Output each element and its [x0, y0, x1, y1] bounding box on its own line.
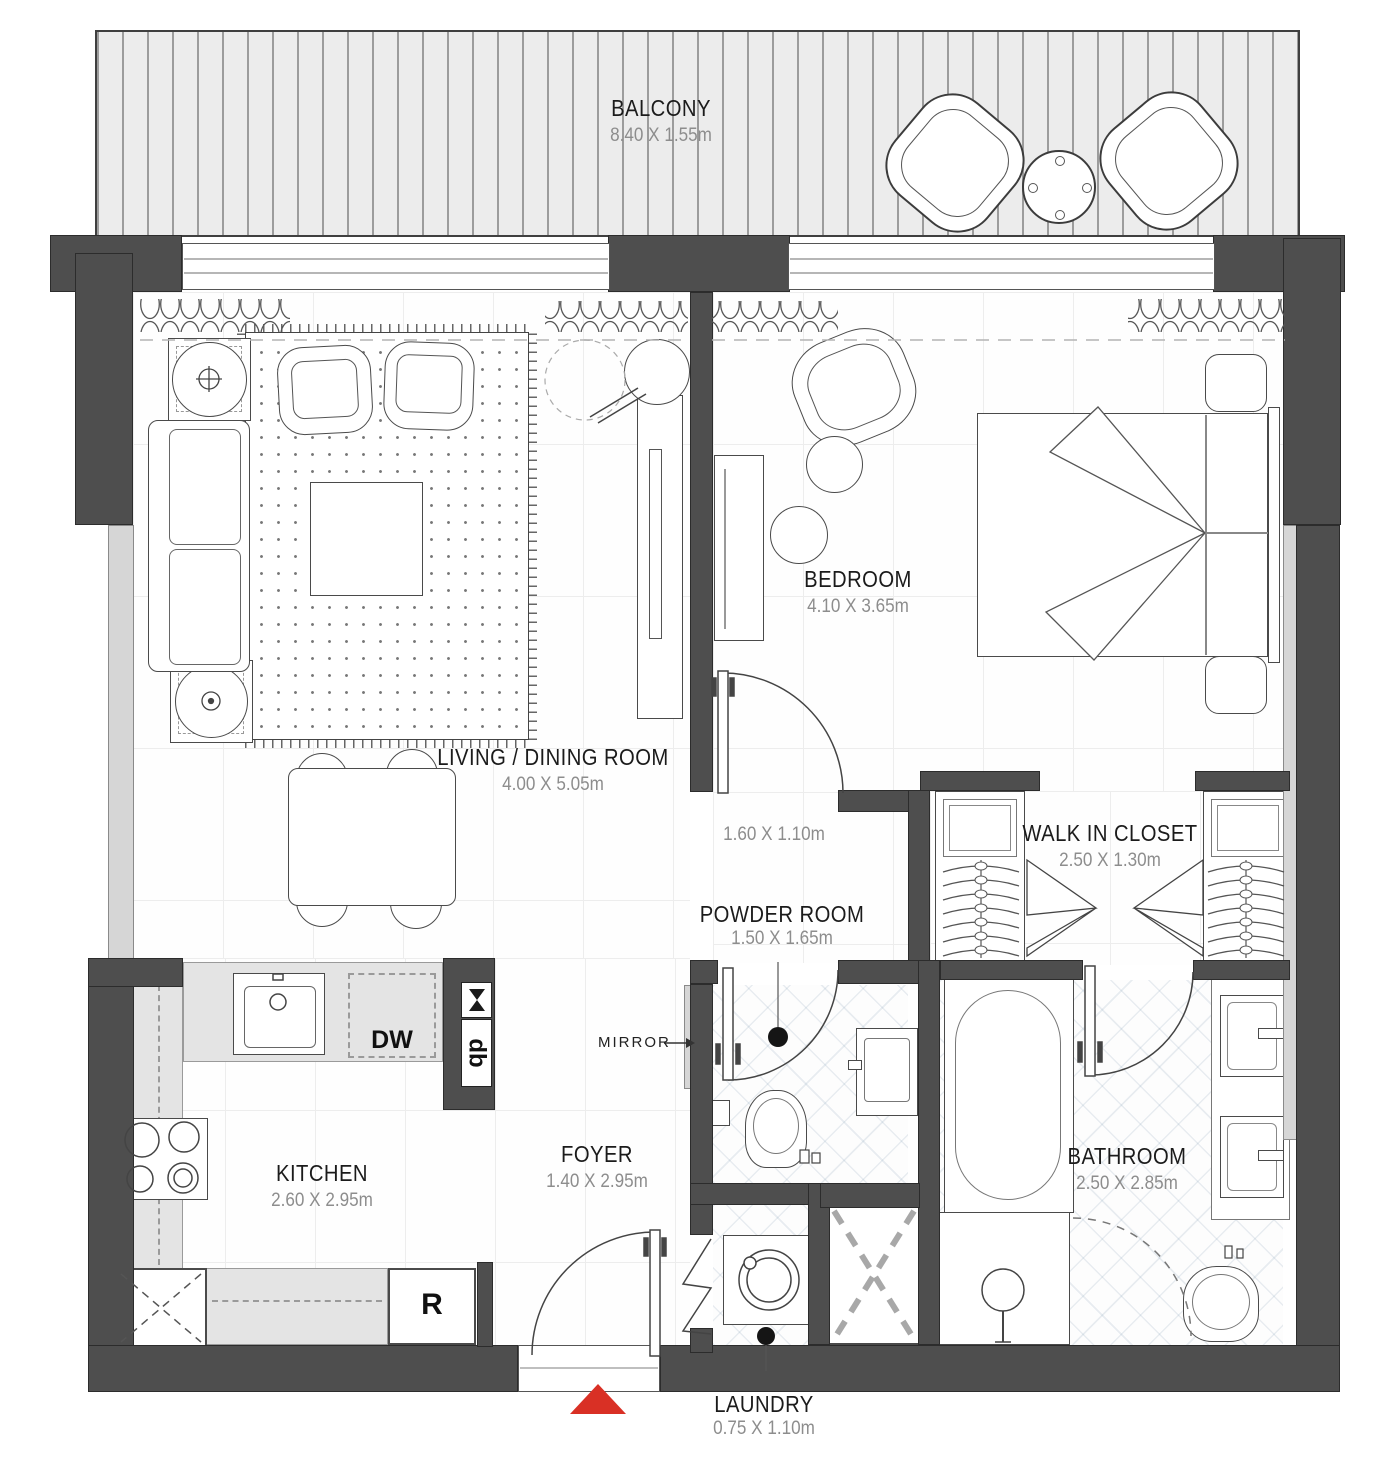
wall-segment	[608, 235, 790, 292]
bedroom-label: BEDROOM 4.10 X 3.65m	[738, 566, 978, 618]
faucet	[848, 1060, 862, 1070]
wall-segment	[1193, 960, 1290, 980]
seat	[799, 334, 910, 439]
seat	[395, 354, 463, 414]
rug-fringe	[245, 324, 529, 332]
balcony-name: BALCONY	[555, 95, 766, 122]
kitchen-sink	[233, 973, 325, 1055]
wall-segment	[108, 525, 134, 962]
toilet-seat	[753, 1098, 799, 1154]
bowtie-panel	[461, 982, 492, 1018]
bathroom-name: BATHROOM	[1021, 1143, 1232, 1170]
balcony-round-table	[1022, 150, 1096, 224]
shower	[938, 1212, 1070, 1345]
toilet-seat	[1192, 1274, 1250, 1330]
walk-in-closet-label: WALK IN CLOSET 2.50 X 1.30m	[990, 820, 1230, 872]
walk-in-closet-dims: 2.50 X 1.30m	[1002, 850, 1218, 872]
sofa-cushion	[169, 549, 241, 665]
foyer-name: FOYER	[491, 1141, 702, 1168]
powder-room-dims: 1.50 X 1.65m	[674, 928, 890, 950]
window	[182, 243, 610, 290]
floor-plan: db	[0, 0, 1389, 1463]
bed	[977, 413, 1268, 657]
wall-segment	[88, 960, 134, 1392]
dishwasher-label: DW	[352, 1026, 432, 1055]
service-shaft	[828, 1205, 920, 1345]
wall-segment	[477, 1262, 493, 1347]
table-dot	[1082, 183, 1092, 193]
kitchen-name: KITCHEN	[216, 1160, 427, 1187]
basin	[864, 1038, 910, 1102]
wall-segment	[838, 960, 920, 984]
rug-fringe	[529, 332, 537, 740]
counter-dash	[212, 1300, 382, 1302]
wall-segment	[690, 1328, 713, 1353]
wall-segment	[690, 292, 713, 792]
wall-segment	[690, 960, 718, 984]
laundry-dims: 0.75 X 1.10m	[656, 1418, 872, 1440]
bathroom-dims: 2.50 X 2.85m	[1019, 1173, 1235, 1195]
bed-pillow-line	[1205, 415, 1207, 655]
table-dot	[1055, 210, 1065, 220]
wall-segment	[75, 253, 133, 525]
wall-segment	[940, 960, 1083, 980]
entrance-arrow	[570, 1384, 626, 1414]
wall-segment	[838, 790, 910, 812]
db-panel: db	[461, 1019, 492, 1087]
kitchen-counter-bottom	[205, 1268, 388, 1345]
bedroom-door-dims-label: 1.60 X 1.10m	[654, 824, 894, 846]
db-label: db	[463, 1038, 491, 1067]
nightstand	[1205, 354, 1267, 412]
table-dot	[1055, 156, 1065, 166]
toilet	[745, 1090, 807, 1168]
kitchen-label: KITCHEN 2.60 X 2.95m	[202, 1160, 442, 1212]
plant	[172, 342, 247, 417]
mirror-label: MIRROR	[598, 1034, 671, 1051]
wall-segment	[820, 1183, 920, 1208]
wall-segment	[1296, 525, 1340, 1392]
laundry-name: LAUNDRY	[658, 1391, 869, 1418]
powder-room-label: POWDER ROOM 1.50 X 1.65m	[662, 901, 902, 950]
kitchen-dims: 2.60 X 2.95m	[214, 1190, 430, 1212]
wall-segment	[908, 790, 930, 965]
sofa	[148, 420, 250, 672]
living-room-name: LIVING / DINING ROOM	[412, 744, 694, 771]
tv-console	[637, 395, 683, 719]
armchair	[276, 344, 374, 437]
foyer-dims: 1.40 X 2.95m	[489, 1171, 705, 1193]
bedroom-name: BEDROOM	[752, 566, 963, 593]
powder-vanity	[856, 1028, 918, 1116]
wall-segment	[88, 958, 183, 987]
wall-segment	[1283, 238, 1341, 525]
balcony-dims: 8.40 X 1.55m	[553, 125, 769, 147]
nightstand	[1205, 656, 1267, 714]
wall-segment	[88, 1345, 518, 1392]
wall-segment	[1195, 771, 1290, 791]
bed-center-line	[1205, 532, 1268, 534]
powder-room-name: POWDER ROOM	[676, 901, 887, 928]
pouf	[806, 436, 863, 493]
refrigerator-label: R	[388, 1288, 476, 1322]
bathroom-label: BATHROOM 2.50 X 2.85m	[1007, 1143, 1247, 1195]
wall-segment	[1283, 525, 1297, 1140]
faucet	[1258, 1150, 1284, 1161]
console-line	[724, 469, 726, 629]
wall-segment	[918, 960, 940, 1345]
plant	[175, 665, 248, 738]
tv	[649, 449, 662, 639]
balcony-label: BALCONY 8.40 X 1.55m	[541, 95, 781, 147]
headboard	[1268, 407, 1280, 663]
window	[788, 243, 1215, 290]
foyer-label: FOYER 1.40 X 2.95m	[477, 1141, 717, 1193]
faucet	[1258, 1028, 1284, 1039]
living-room-label: LIVING / DINING ROOM 4.00 X 5.05m	[393, 744, 713, 796]
sofa-cushion	[169, 429, 241, 545]
wall-segment	[920, 771, 1040, 791]
table-dot	[1028, 183, 1038, 193]
living-room-dims: 4.00 X 5.05m	[409, 774, 697, 796]
bedroom-door-dims: 1.60 X 1.10m	[666, 824, 882, 846]
washing-machine	[723, 1235, 815, 1325]
floor-lamp	[624, 339, 690, 405]
armchair	[382, 340, 475, 431]
bowtie-icon	[467, 987, 487, 1013]
toilet	[1183, 1266, 1259, 1342]
pouf	[770, 506, 828, 564]
coffee-table	[310, 482, 423, 596]
laundry-label: LAUNDRY 0.75 X 1.10m	[644, 1391, 884, 1440]
seat	[290, 358, 359, 419]
wall-segment	[660, 1345, 1340, 1392]
walk-in-closet-name: WALK IN CLOSET	[1004, 820, 1215, 847]
bedroom-dims: 4.10 X 3.65m	[750, 596, 966, 618]
sink-basin	[244, 986, 316, 1048]
